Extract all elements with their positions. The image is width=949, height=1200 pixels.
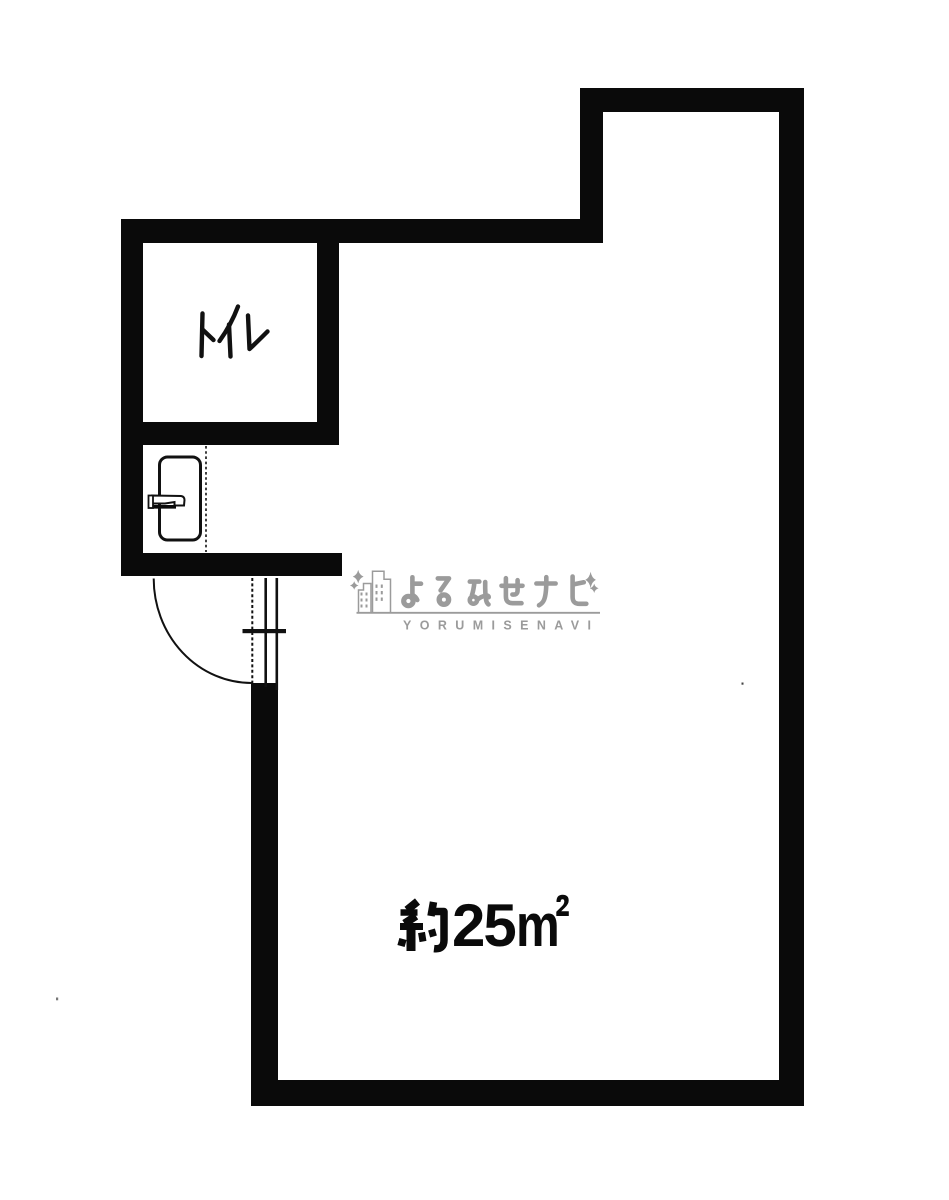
svg-text:25: 25: [452, 892, 515, 959]
svg-text:YORUMISENAVI: YORUMISENAVI: [403, 619, 599, 633]
svg-text:m: m: [516, 891, 560, 959]
